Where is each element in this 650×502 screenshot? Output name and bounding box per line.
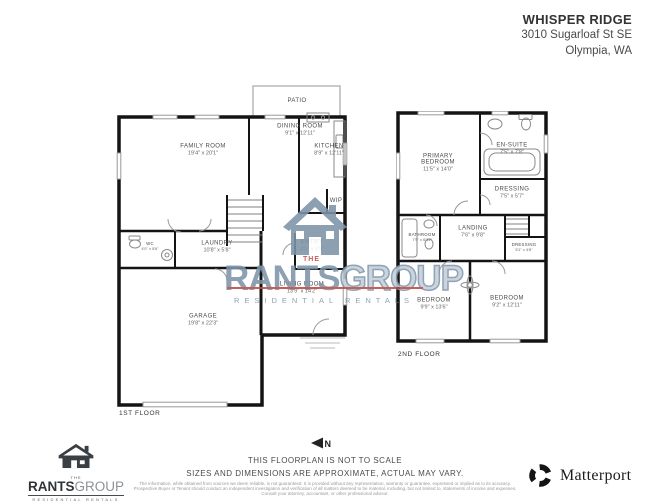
room-label-kitchen: KITCHEN 8'9" x 12'11": [314, 144, 344, 157]
room-label-entry: ENTRY 4'5" x 9'9": [300, 240, 324, 253]
rants-house-icon: [56, 442, 96, 469]
room-label-bedroom2: BEDROOM 9'2" x 12'11": [490, 296, 524, 309]
north-arrow-icon: N: [311, 437, 333, 450]
room-label-primary-bedroom: PRIMARY BEDROOM 11'5" x 14'0": [413, 154, 463, 173]
rants-logo-group: GROUP: [75, 479, 125, 494]
room-label-patio: PATIO: [287, 98, 306, 104]
room-label-ensuite: EN-SUITE 7'5" x 7'8": [496, 143, 527, 156]
property-address-line1: 3010 Sugarloaf St SE: [521, 27, 632, 43]
ensuite-sink: [488, 119, 502, 129]
floor1-walls: [118, 117, 345, 405]
floor1-stairs: [228, 200, 262, 242]
room-label-landing: LANDING 7'6" x 9'8": [458, 226, 487, 239]
matterport-mark-icon: [528, 463, 553, 488]
floor1-label: 1ST FLOOR: [119, 410, 160, 417]
room-label-living-room: LIVING ROOM 13'9" x 14'2": [280, 282, 324, 295]
matterport-logo: Matterport: [528, 463, 631, 488]
property-header: WHISPER RIDGE 3010 Sugarloaf St SE Olymp…: [521, 12, 632, 59]
rants-group-logo: THE RANTSGROUP RESIDENTIAL RENTALS: [28, 442, 124, 502]
room-label-family-room: FAMILY ROOM 19'4" x 20'1": [180, 144, 226, 157]
rants-logo-wordmark: RANTSGROUP: [28, 480, 124, 496]
floor2-plan: PRIMARY BEDROOM 11'5" x 14'0" EN-SUITE 7…: [396, 111, 551, 366]
garage-door: [143, 402, 227, 407]
bathroom-sink: [424, 220, 434, 228]
property-address-line2: Olympia, WA: [521, 43, 632, 59]
rants-logo-tagline: RESIDENTIAL RENTALS: [28, 497, 124, 502]
floorplan-page: WHISPER RIDGE 3010 Sugarloaf St SE Olymp…: [0, 0, 650, 502]
room-label-bedroom1: BEDROOM 9'9" x 13'6": [417, 298, 451, 311]
floor2-label: 2ND FLOOR: [398, 351, 441, 358]
north-letter: N: [325, 439, 332, 449]
room-label-laundry: LAUNDRY 10'8" x 5'8": [201, 241, 232, 254]
room-label-dressing2: DRESSING 5'1" x 4'8": [512, 243, 537, 252]
room-label-dining-room: DINING ROOM 9'1" x 12'11": [277, 124, 323, 137]
room-label-wip: WIP: [330, 198, 343, 204]
room-label-dressing: DRESSING 7'5" x 5'7": [495, 187, 530, 200]
floor1-plan: PATIO FAMILY ROOM 19'4" x 20'1" DINING R…: [115, 83, 355, 423]
laundry-machine: [162, 250, 173, 261]
room-label-bathroom: BATHROOM 7'5" x 6'11": [409, 233, 436, 242]
room-label-garage: GARAGE 19'8" x 22'3": [188, 314, 218, 327]
wc-toilet: [130, 240, 141, 248]
floor1-windows: [117, 115, 347, 407]
floor2-stairs: [506, 219, 528, 234]
room-label-wc: WC 4'0" x 5'6": [141, 242, 158, 251]
rants-logo-rants: RANTS: [28, 479, 75, 494]
property-title: WHISPER RIDGE: [521, 12, 632, 27]
porch-steps: [300, 338, 345, 348]
matterport-label: Matterport: [560, 467, 631, 485]
